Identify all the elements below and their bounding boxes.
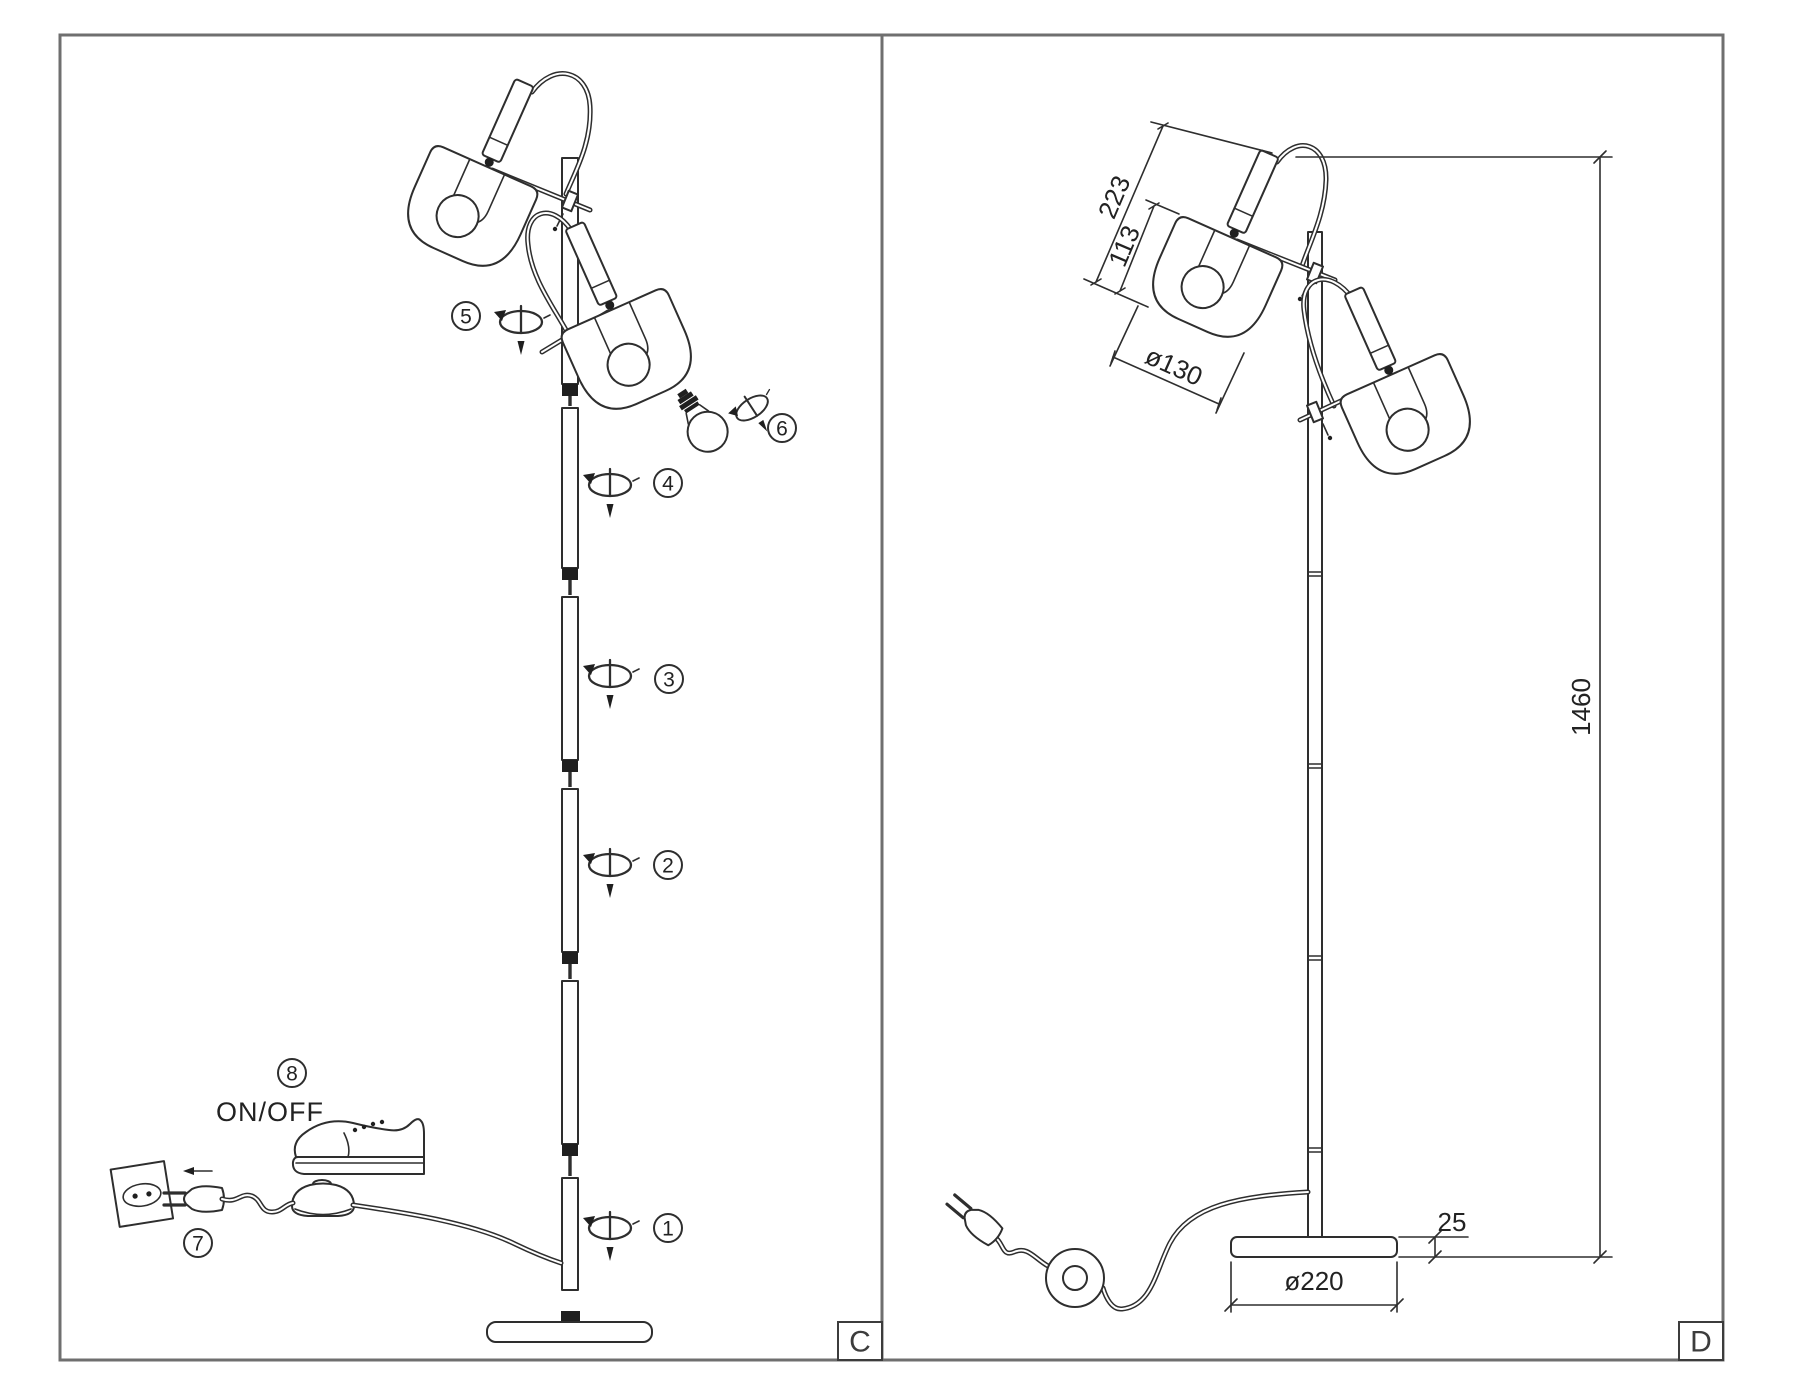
foot-switch-icon [1046,1249,1104,1307]
base [1231,1237,1397,1257]
dim-25-label: 25 [1438,1207,1467,1237]
diagram-canvas: C D [0,0,1800,1400]
dimension-lamp-height: 1460 [1296,151,1612,1263]
lamp-head [395,59,577,278]
step-badge-2: 2 [654,851,682,879]
step-number: 3 [663,668,675,691]
base [487,1311,652,1342]
step-badge-3: 3 [655,665,683,693]
dimension-base-height: 25 [1399,1207,1468,1263]
step-number: 2 [662,854,674,877]
lower-lamp [521,202,703,421]
panel-c-label: C [838,1322,882,1360]
lower-lamp [1300,267,1483,486]
step-badge-4: 4 [654,469,682,497]
on-off-label: ON/OFF [216,1097,324,1127]
lamp-head [1140,130,1322,349]
lamp-head [521,202,703,421]
screw-rotate-icon [583,849,639,898]
dim-1460-label: 1460 [1566,678,1596,736]
shoe-icon [293,1119,424,1174]
plug-icon [943,1190,1005,1248]
step-badge-5: 5 [452,302,480,330]
step-number: 7 [192,1232,204,1255]
dim-220-label: ø220 [1284,1266,1343,1296]
step-number: 4 [662,472,674,495]
bulb-icon [665,381,736,460]
screw-rotate-icon [583,1212,639,1261]
panel-c-letter: C [849,1326,871,1359]
step-number: 5 [460,305,472,328]
instruction-sheet: C D [0,0,1800,1400]
dim-113-label: 113 [1102,221,1146,271]
step-badge-6: 6 [768,414,796,442]
arrow-icon [183,1167,212,1175]
panel-d: 223 113 ø130 1460 [943,122,1612,1312]
panel-c: 5 4 3 2 1 6 7 8 ON/OFF [111,59,796,1342]
foot-switch-icon [292,1180,354,1216]
step-number: 1 [662,1217,674,1240]
step-badge-8: 8 [278,1059,306,1087]
screw-rotate-icon [494,306,550,355]
step-number: 8 [286,1062,298,1085]
upper-lamp [395,59,590,278]
step-badge-1: 1 [654,1214,682,1242]
step-badge-7: 7 [184,1229,212,1257]
screw-rotate-icon [583,469,639,518]
panel-d-label: D [1679,1322,1723,1360]
screw-rotate-icon [583,660,639,709]
step-number: 6 [776,417,788,440]
dim-223-label: 223 [1092,171,1137,223]
panel-d-letter: D [1690,1326,1712,1359]
dimension-base-diameter: ø220 [1225,1262,1403,1312]
pole [1308,232,1322,1237]
power-cord [222,1195,561,1263]
plug-icon [164,1186,224,1212]
lamp-head [1300,267,1482,486]
